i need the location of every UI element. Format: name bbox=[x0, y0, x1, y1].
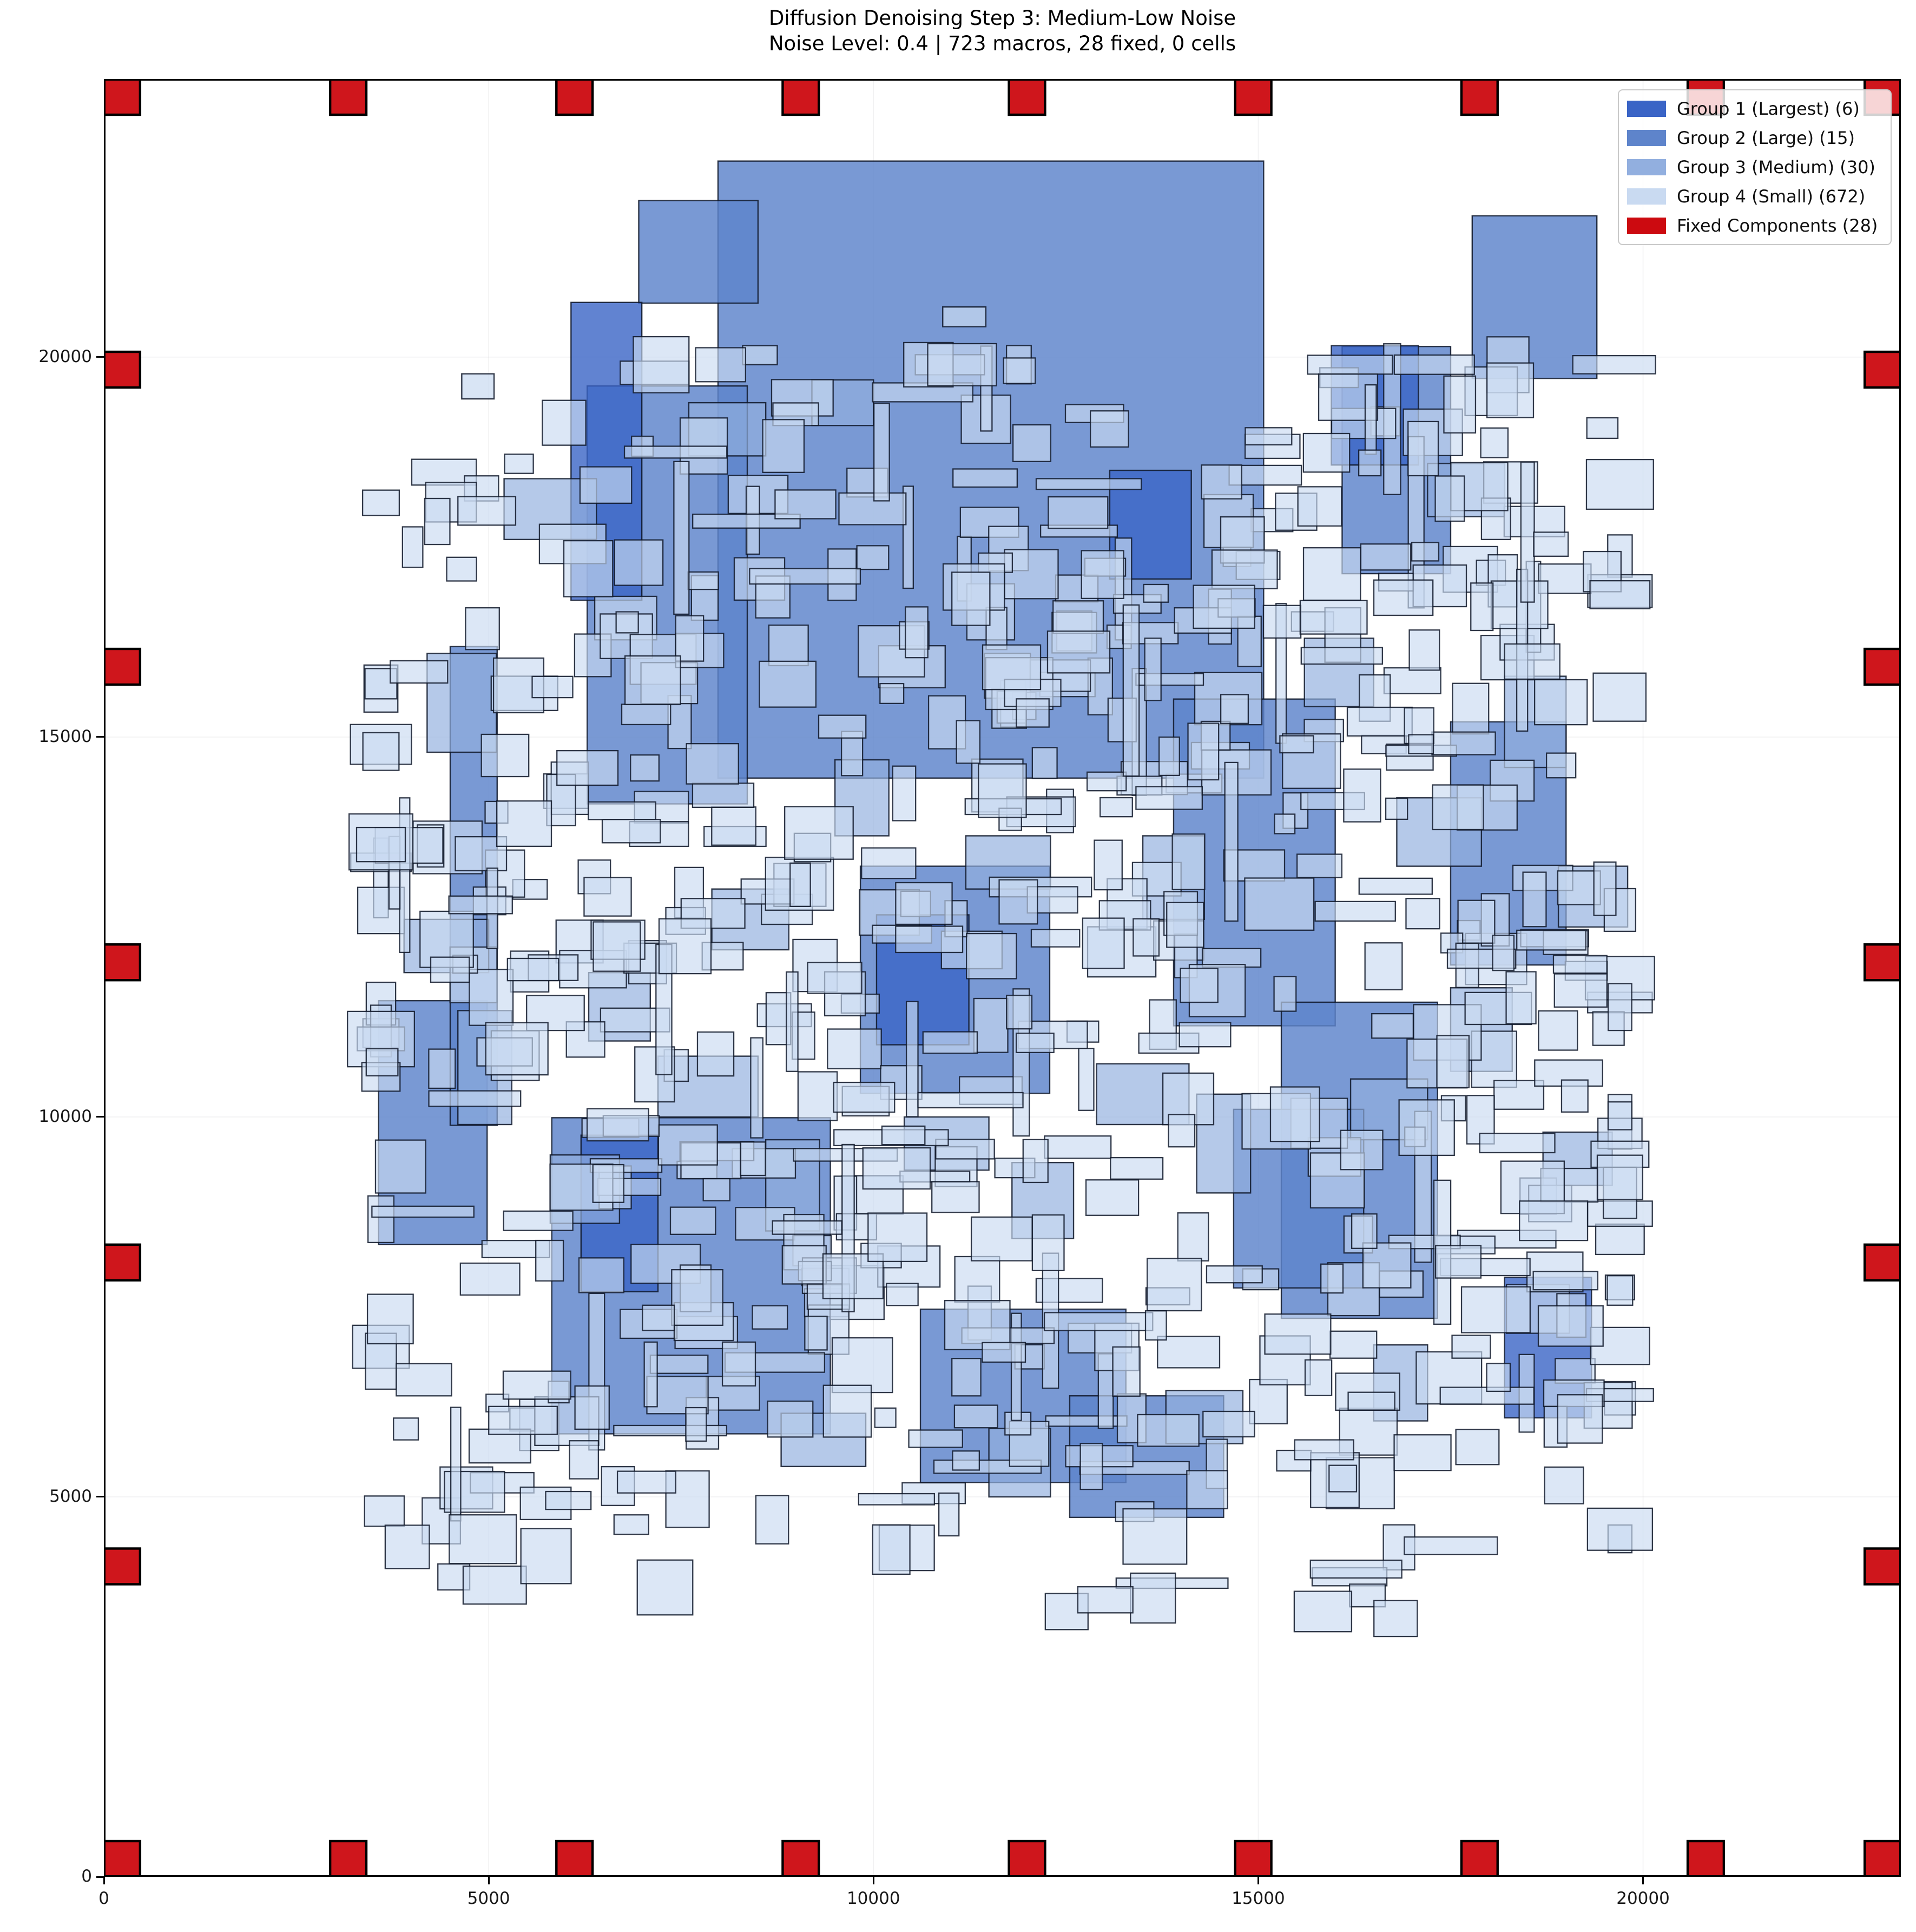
macro-rect-group4-312 bbox=[703, 1179, 730, 1201]
macro-rect-group4-386 bbox=[863, 1148, 930, 1189]
legend-row-2: Group 3 (Medium) (30) bbox=[1627, 157, 1881, 178]
macro-rect-group4-445 bbox=[451, 1408, 460, 1521]
legend-row-4: Fixed Components (28) bbox=[1627, 215, 1881, 236]
macro-rect-group4-540 bbox=[1308, 356, 1393, 374]
fixed-component-left-4 bbox=[104, 1548, 140, 1584]
legend-swatch-icon bbox=[1627, 159, 1666, 175]
macro-rect-group4-625 bbox=[1562, 1080, 1588, 1112]
macro-rect-group4-430 bbox=[798, 1072, 837, 1120]
macro-rect-group4-410 bbox=[521, 1529, 571, 1584]
x-axis-tick-label: 20000 bbox=[1573, 1889, 1714, 1908]
macro-rect-group4-152 bbox=[696, 348, 746, 382]
macro-rect-group4-306 bbox=[1249, 1379, 1287, 1424]
macro-rect-group4-453 bbox=[1082, 550, 1124, 598]
macro-rect-group4-404 bbox=[1113, 1347, 1140, 1396]
macro-rect-group4-433 bbox=[1437, 1036, 1469, 1088]
macro-rect-group4-601 bbox=[1181, 969, 1218, 1003]
macro-rect-group4-610 bbox=[671, 1270, 722, 1325]
macro-rect-group4-398 bbox=[1452, 684, 1489, 734]
macro-rect-group4-524 bbox=[686, 1408, 706, 1441]
macro-rect-group4-450 bbox=[449, 1515, 516, 1563]
macro-rect-group4-537 bbox=[425, 498, 450, 544]
macro-rect-group4-71 bbox=[861, 848, 916, 878]
y-axis-tick bbox=[96, 1496, 104, 1497]
macro-rect-group4-651 bbox=[1517, 930, 1586, 950]
macro-rect-group4-570 bbox=[1036, 478, 1141, 489]
macro-rect-group4-590 bbox=[982, 1343, 1025, 1362]
macro-rect-group4-637 bbox=[750, 1038, 762, 1138]
macro-rect-group4-624 bbox=[1519, 1201, 1588, 1240]
macro-rect-group4-333 bbox=[712, 807, 756, 845]
macro-rect-group4-303 bbox=[697, 1032, 734, 1076]
macro-rect-group4-600 bbox=[1394, 1435, 1451, 1470]
x-axis-tick-label: 10000 bbox=[803, 1889, 944, 1908]
macro-rect-group4-189 bbox=[1533, 1272, 1598, 1290]
macro-rect-group4-508 bbox=[1523, 872, 1546, 927]
macro-rect-group4-468 bbox=[1274, 976, 1296, 1011]
macro-rect-group4-456 bbox=[575, 1386, 609, 1429]
macro-rect-group4-587 bbox=[1032, 1215, 1064, 1271]
macro-rect-group4-9 bbox=[1596, 1224, 1644, 1254]
macro-rect-group4-574 bbox=[1521, 462, 1535, 602]
macro-rect-group4-402 bbox=[637, 1560, 693, 1615]
macro-rect-group4-294 bbox=[932, 1181, 979, 1212]
macro-rect-group4-432 bbox=[616, 612, 638, 633]
macro-rect-group4-6 bbox=[1044, 1136, 1111, 1158]
macro-rect-group4-371 bbox=[363, 733, 399, 771]
macro-rect-group4-473 bbox=[1558, 1395, 1603, 1443]
macro-rect-group4-311 bbox=[763, 419, 804, 472]
macro-rect-group4-27 bbox=[1456, 1429, 1499, 1464]
macro-rect-group4-464 bbox=[740, 1142, 765, 1175]
macro-rect-group4-555 bbox=[1123, 605, 1139, 776]
macro-rect-group4-575 bbox=[759, 661, 815, 707]
macro-rect-group4-280 bbox=[670, 1207, 715, 1234]
macro-rect-group4-523 bbox=[1083, 918, 1124, 969]
macro-rect-group4-563 bbox=[1410, 630, 1440, 670]
macro-rect-group4-486 bbox=[896, 926, 963, 952]
macro-rect-group4-253 bbox=[1137, 1415, 1199, 1446]
macro-rect-group4-467 bbox=[674, 462, 689, 614]
y-axis-tick bbox=[96, 736, 104, 738]
macro-rect-group4-548 bbox=[971, 1217, 1032, 1261]
macro-rect-group4-549 bbox=[1487, 363, 1533, 418]
macro-rect-group4-645 bbox=[1608, 1102, 1632, 1129]
macro-rect-group4-535 bbox=[536, 1240, 563, 1281]
macro-rect-group4-577 bbox=[824, 1385, 871, 1437]
macro-rect-group4-15 bbox=[1406, 898, 1439, 929]
macro-rect-group4-551 bbox=[1348, 1392, 1395, 1410]
fixed-component-bottom-8 bbox=[1865, 1841, 1901, 1877]
macro-rect-group4-596 bbox=[1374, 1600, 1417, 1637]
fixed-component-top-6 bbox=[1461, 79, 1498, 115]
fixed-component-right-0 bbox=[1865, 352, 1901, 387]
macro-rect-group4-592 bbox=[1031, 930, 1079, 947]
macro-rect-group4-667 bbox=[615, 540, 663, 586]
macro-rect-group4-230 bbox=[1372, 1014, 1413, 1038]
macro-rect-group4-435 bbox=[1329, 1466, 1357, 1492]
macro-rect-group4-300 bbox=[957, 721, 980, 764]
macro-rect-group4-177 bbox=[873, 1525, 910, 1574]
macro-rect-group4-521 bbox=[1081, 1443, 1103, 1489]
y-axis-tick bbox=[96, 1116, 104, 1118]
macro-rect-group4-203 bbox=[953, 1451, 979, 1470]
macro-rect-group4-658 bbox=[508, 958, 558, 981]
legend-swatch-icon bbox=[1627, 101, 1666, 117]
macro-rect-group4-86 bbox=[1365, 943, 1403, 990]
macro-rect-group4-319 bbox=[542, 400, 585, 445]
fixed-component-right-2 bbox=[1865, 944, 1901, 980]
macro-rect-group4-260 bbox=[570, 1441, 598, 1478]
macro-rect-group4-622 bbox=[1032, 747, 1057, 778]
macro-rect-group4-547 bbox=[1444, 376, 1475, 433]
macro-rect-group4-593 bbox=[1487, 1364, 1510, 1391]
macro-rect-group4-496 bbox=[1016, 1033, 1054, 1052]
macro-rect-group4-452 bbox=[532, 676, 573, 698]
macro-rect-group4-660 bbox=[1167, 903, 1203, 948]
macro-rect-group4-650 bbox=[1078, 1587, 1133, 1613]
macro-rect-group4-374 bbox=[1408, 422, 1438, 476]
plot-canvas bbox=[104, 79, 1901, 1877]
macro-rect-group4-288 bbox=[1607, 1276, 1632, 1305]
macro-rect-group4-656 bbox=[1553, 956, 1607, 973]
legend-label: Fixed Components (28) bbox=[1677, 215, 1878, 236]
macro-rect-group4-581 bbox=[497, 801, 551, 846]
macro-rect-group4-434 bbox=[1087, 772, 1126, 791]
macro-rect-group4-219 bbox=[463, 1566, 526, 1604]
macro-rect-group4-361 bbox=[579, 1258, 624, 1292]
y-axis-tick bbox=[96, 1876, 104, 1878]
macro-rect-group4-extra-3 bbox=[742, 346, 777, 365]
macro-rect-group4-517 bbox=[1493, 935, 1514, 970]
fixed-component-right-1 bbox=[1865, 649, 1901, 685]
macro-rect-group4-659 bbox=[1590, 581, 1650, 609]
macro-rect-group4-440 bbox=[676, 616, 703, 661]
macro-rect-group4-643 bbox=[624, 446, 727, 458]
macro-rect-group4-476 bbox=[1597, 1155, 1643, 1200]
chart-title: Diffusion Denoising Step 3: Medium-Low N… bbox=[104, 5, 1901, 31]
macro-rect-group4-536 bbox=[593, 1165, 624, 1202]
macro-rect-group4-107 bbox=[857, 546, 889, 569]
macro-rect-group4-580 bbox=[1263, 606, 1301, 638]
macro-rect-group4-277 bbox=[659, 1125, 717, 1165]
macro-rect-group4-584 bbox=[482, 734, 529, 777]
macro-rect-group4-572 bbox=[372, 1206, 473, 1217]
macro-rect-group4-482 bbox=[1436, 1246, 1481, 1278]
macro-rect-group4-631 bbox=[819, 715, 866, 738]
macro-rect-group4-345 bbox=[1330, 1331, 1377, 1358]
macro-rect-group4-87 bbox=[614, 1425, 727, 1436]
macro-rect-group4-597 bbox=[1305, 1360, 1332, 1396]
macro-rect-group4-490 bbox=[429, 1049, 455, 1088]
macro-rect-group4-662 bbox=[1145, 638, 1161, 700]
fixed-component-left-2 bbox=[104, 944, 140, 980]
macro-rect-group4-233 bbox=[1386, 798, 1407, 819]
macro-rect-group4-423 bbox=[785, 806, 853, 859]
macro-rect-group4-34 bbox=[827, 1029, 881, 1069]
macro-rect-group4-661 bbox=[928, 344, 997, 386]
macro-rect-group4-494 bbox=[1133, 919, 1159, 956]
macro-rect-group4-382 bbox=[1412, 542, 1439, 561]
macro-rect-group4-446 bbox=[1130, 1573, 1175, 1623]
macro-rect-group4-131 bbox=[469, 969, 513, 1025]
fixed-component-bottom-1 bbox=[330, 1841, 366, 1877]
macro-rect-group4-185 bbox=[393, 1418, 418, 1440]
macro-rect-group4-125 bbox=[1384, 668, 1441, 694]
macro-rect-group4-615 bbox=[644, 1342, 657, 1407]
macro-rect-group4-604 bbox=[1203, 1411, 1254, 1437]
macro-rect-group4-647 bbox=[999, 880, 1038, 924]
macro-rect-group4-483 bbox=[1048, 497, 1108, 528]
legend-label: Group 4 (Small) (672) bbox=[1677, 186, 1865, 207]
macro-rect-group4-409 bbox=[1053, 601, 1103, 633]
macro-rect-group4-155 bbox=[545, 1491, 591, 1509]
macro-rect-group4-487 bbox=[1315, 902, 1395, 921]
macro-rect-group4-248 bbox=[1090, 411, 1128, 447]
macro-rect-group4-365 bbox=[1321, 1264, 1343, 1293]
macro-rect-group4-54 bbox=[768, 1401, 813, 1437]
macro-rect-group4-515 bbox=[1432, 732, 1495, 755]
macro-rect-group4-510 bbox=[886, 1284, 918, 1306]
macro-rect-group4-443 bbox=[1123, 1509, 1187, 1564]
macro-rect-group4-619 bbox=[1145, 1311, 1167, 1340]
macro-rect-group4-415 bbox=[1265, 1314, 1331, 1354]
macro-rect-group4-641 bbox=[1212, 550, 1278, 588]
fixed-component-top-1 bbox=[330, 79, 366, 115]
macro-rect-group4-173 bbox=[953, 469, 1017, 487]
macro-rect-group4-360 bbox=[918, 1093, 1023, 1108]
macro-rect-group4-447 bbox=[1188, 724, 1219, 780]
macro-rect-group4-377 bbox=[650, 1355, 708, 1373]
macro-rect-group4-609 bbox=[366, 1049, 398, 1076]
macro-rect-group4-642 bbox=[1505, 644, 1560, 679]
macro-rect-group4-545 bbox=[602, 819, 660, 843]
macro-rect-group4-579 bbox=[584, 877, 631, 916]
macro-rect-group4-243 bbox=[775, 490, 835, 518]
legend-row-1: Group 2 (Large) (15) bbox=[1627, 128, 1881, 148]
macro-rect-group4-527 bbox=[1394, 355, 1474, 374]
chart-title-block: Diffusion Denoising Step 3: Medium-Low N… bbox=[104, 5, 1901, 56]
fixed-component-top-4 bbox=[1009, 79, 1045, 115]
macro-rect-group4-506 bbox=[954, 1405, 998, 1428]
macro-rect-group4-394 bbox=[580, 467, 631, 503]
macro-rect-group4-571 bbox=[431, 957, 469, 982]
macro-rect-group4-554 bbox=[503, 1371, 571, 1399]
macro-rect-group4-346 bbox=[1100, 798, 1133, 817]
macro-rect-group4-234 bbox=[1144, 584, 1168, 602]
macro-rect-group4-19 bbox=[1046, 1416, 1127, 1426]
macro-rect-group4-514 bbox=[782, 1246, 826, 1284]
macro-rect-group4-298 bbox=[363, 490, 399, 516]
macro-rect-group4-605 bbox=[1344, 769, 1380, 822]
macro-rect-group4-621 bbox=[458, 497, 516, 525]
macro-rect-group4-558 bbox=[1207, 1266, 1262, 1283]
macro-rect-group4-634 bbox=[868, 1213, 927, 1261]
fixed-component-bottom-3 bbox=[782, 1841, 819, 1877]
macro-rect-group4-526 bbox=[504, 1211, 573, 1231]
macro-rect-group4-296 bbox=[874, 403, 889, 501]
figure-root: Diffusion Denoising Step 3: Medium-Low N… bbox=[0, 0, 1916, 1932]
fixed-component-right-3 bbox=[1865, 1245, 1901, 1280]
macro-rect-group4-424 bbox=[896, 883, 952, 924]
legend-swatch-icon bbox=[1627, 130, 1666, 146]
macro-rect-group4-635 bbox=[722, 1342, 755, 1386]
macro-rect-group4-583 bbox=[1432, 785, 1483, 829]
macro-rect-group4-293 bbox=[1573, 356, 1656, 374]
macro-rect-group4-205 bbox=[1013, 425, 1051, 462]
legend-swatch-icon bbox=[1627, 218, 1666, 234]
macro-rect-group4-272 bbox=[1245, 878, 1314, 930]
macro-rect-group4-70 bbox=[974, 998, 1008, 1053]
macro-rect-group4-541 bbox=[447, 557, 477, 581]
macro-rect-group4-516 bbox=[978, 764, 1026, 818]
macro-rect-group4-614 bbox=[1303, 433, 1349, 472]
macro-rect-group4-664 bbox=[1594, 862, 1616, 916]
macro-rect-group4-525 bbox=[403, 527, 423, 568]
fixed-component-left-3 bbox=[104, 1245, 140, 1280]
macro-rect-group4-538 bbox=[588, 802, 656, 820]
macro-rect-group4-591 bbox=[808, 963, 862, 994]
x-axis-tick bbox=[1642, 1877, 1644, 1884]
macro-rect-group4-369 bbox=[693, 783, 754, 807]
macro-rect-group4-565 bbox=[1352, 1214, 1377, 1248]
macro-rect-group4-297 bbox=[1594, 673, 1646, 721]
macro-rect-group4-115 bbox=[385, 1525, 430, 1568]
macro-rect-group4-552 bbox=[390, 661, 447, 683]
macro-rect-group4-628 bbox=[1588, 1508, 1652, 1550]
macro-rect-group4-215 bbox=[1023, 1140, 1048, 1182]
macro-rect-group4-419 bbox=[1245, 428, 1292, 445]
macro-rect-group4-488 bbox=[882, 1126, 925, 1145]
macro-rect-group4-269 bbox=[368, 1196, 394, 1243]
macro-rect-group4-616 bbox=[1359, 450, 1381, 476]
macro-rect-group4-602 bbox=[1280, 736, 1313, 753]
macro-rect-group4-589 bbox=[587, 1109, 649, 1141]
macro-rect-group4-613 bbox=[1535, 680, 1587, 725]
fixed-component-right-4 bbox=[1865, 1548, 1901, 1584]
fixed-component-top-3 bbox=[782, 79, 819, 115]
macro-rect-group4-654 bbox=[1538, 1011, 1577, 1050]
y-axis-tick-label: 0 bbox=[0, 1867, 92, 1886]
legend-label: Group 1 (Largest) (6) bbox=[1677, 98, 1860, 119]
macro-rect-group4-546 bbox=[1341, 1131, 1383, 1169]
macro-rect-group4-663 bbox=[630, 755, 659, 781]
macro-rect-group4-417 bbox=[1361, 544, 1411, 570]
macro-rect-group2-14 bbox=[638, 201, 758, 304]
macro-rect-group4-666 bbox=[939, 1493, 959, 1536]
macro-rect-group4-17 bbox=[365, 1496, 404, 1526]
macro-rect-group4-390 bbox=[753, 1306, 788, 1329]
macro-rect-group4-595 bbox=[357, 827, 405, 862]
macro-rect-group4-485 bbox=[1006, 995, 1032, 1029]
macro-rect-group4-407 bbox=[1608, 984, 1631, 1031]
macro-rect-group4-561 bbox=[1297, 854, 1342, 877]
macro-rect-group4-603 bbox=[489, 1407, 557, 1435]
macro-rect-group4-560 bbox=[1587, 418, 1618, 438]
macro-rect-group4-99 bbox=[1555, 1358, 1595, 1383]
macro-rect-group4-extra-0 bbox=[943, 307, 986, 327]
macro-rect-group4-655 bbox=[1274, 814, 1295, 833]
macro-rect-group4-586 bbox=[1538, 1306, 1603, 1346]
plot-area bbox=[104, 79, 1901, 1877]
macro-rect-group4-350 bbox=[688, 572, 718, 589]
legend-row-0: Group 1 (Largest) (6) bbox=[1627, 98, 1881, 119]
fixed-component-top-2 bbox=[556, 79, 592, 115]
macro-rect-group4-567 bbox=[1365, 385, 1376, 454]
macro-rect-group4-652 bbox=[625, 656, 680, 705]
macro-rect-group4-599 bbox=[875, 1408, 896, 1428]
macro-rect-group4-530 bbox=[367, 1294, 413, 1344]
macro-rect-group4-403 bbox=[1363, 1243, 1411, 1288]
macro-rect-group4-569 bbox=[880, 684, 904, 704]
macro-rect-group4-200 bbox=[859, 1494, 934, 1505]
macro-rect-group4-335 bbox=[1187, 1470, 1227, 1508]
macro-rect-group4-429 bbox=[1221, 695, 1248, 724]
macro-rect-group4-566 bbox=[1202, 465, 1242, 498]
macro-rect-group4-149 bbox=[396, 1364, 451, 1396]
macro-rect-group4-265 bbox=[839, 493, 906, 525]
macro-rect-group4-165 bbox=[1546, 753, 1576, 778]
macro-rect-group4-636 bbox=[449, 896, 512, 914]
macro-rect-group4-633 bbox=[642, 1305, 674, 1331]
chart-subtitle: Noise Level: 0.4 | 723 macros, 28 fixed,… bbox=[104, 31, 1901, 56]
macro-rect-group4-507 bbox=[1016, 699, 1049, 727]
macro-rect-group4-665 bbox=[1194, 586, 1255, 628]
fixed-component-left-1 bbox=[104, 649, 140, 685]
macro-rect-group4-630 bbox=[1004, 358, 1036, 383]
macro-rect-group4-121 bbox=[633, 337, 689, 393]
macro-rect-group4-449 bbox=[486, 1023, 548, 1075]
fixed-component-top-0 bbox=[104, 79, 140, 115]
macro-rect-group4-187 bbox=[805, 1316, 827, 1350]
legend: Group 1 (Largest) (6)Group 2 (Large) (15… bbox=[1618, 89, 1892, 245]
macro-rect-group4-439 bbox=[952, 572, 990, 625]
macro-rect-group4-505 bbox=[1048, 631, 1110, 673]
macro-rect-group4-612 bbox=[786, 972, 798, 1072]
macro-rect-group4-73 bbox=[1173, 834, 1205, 890]
legend-label: Group 3 (Medium) (30) bbox=[1677, 157, 1875, 178]
y-axis-tick-label: 15000 bbox=[0, 727, 92, 746]
fixed-component-left-0 bbox=[104, 352, 140, 387]
macro-rect-group4-617 bbox=[1110, 1158, 1163, 1179]
macro-rect-group4-502 bbox=[1294, 1591, 1352, 1632]
macro-rect-group4-227 bbox=[1458, 901, 1495, 943]
macro-rect-group4-463 bbox=[1225, 763, 1238, 921]
macro-rect-group4-629 bbox=[1506, 972, 1536, 1024]
legend-row-3: Group 4 (Small) (672) bbox=[1627, 186, 1881, 207]
macro-rect-group4-238 bbox=[1545, 1467, 1584, 1504]
x-axis-tick bbox=[488, 1877, 490, 1884]
macro-rect-group4-495 bbox=[923, 1032, 977, 1054]
macro-rect-group4-646 bbox=[773, 1221, 842, 1234]
macro-rect-group4-532 bbox=[1408, 735, 1433, 754]
macro-rect-group4-45 bbox=[460, 1263, 520, 1295]
macro-rect-group4-553 bbox=[1303, 548, 1360, 600]
macro-rect-group4-196 bbox=[505, 454, 534, 473]
macro-rect-group4-462 bbox=[893, 766, 916, 821]
x-axis-tick bbox=[103, 1877, 105, 1884]
macro-rect-group4-364 bbox=[966, 934, 1016, 978]
macro-rect-group4-extra-1 bbox=[462, 374, 494, 399]
x-axis-tick-label: 0 bbox=[34, 1889, 174, 1908]
macro-rect-group4-78 bbox=[465, 608, 499, 649]
macro-rect-group4-620 bbox=[1079, 1048, 1094, 1110]
macro-rect-group4-459 bbox=[687, 744, 739, 784]
macro-rect-group4-120 bbox=[1157, 1337, 1220, 1368]
macro-rect-group4-264 bbox=[1436, 476, 1465, 522]
macro-rect-group4-411 bbox=[622, 704, 670, 724]
macro-rect-group4-522 bbox=[909, 1430, 963, 1448]
